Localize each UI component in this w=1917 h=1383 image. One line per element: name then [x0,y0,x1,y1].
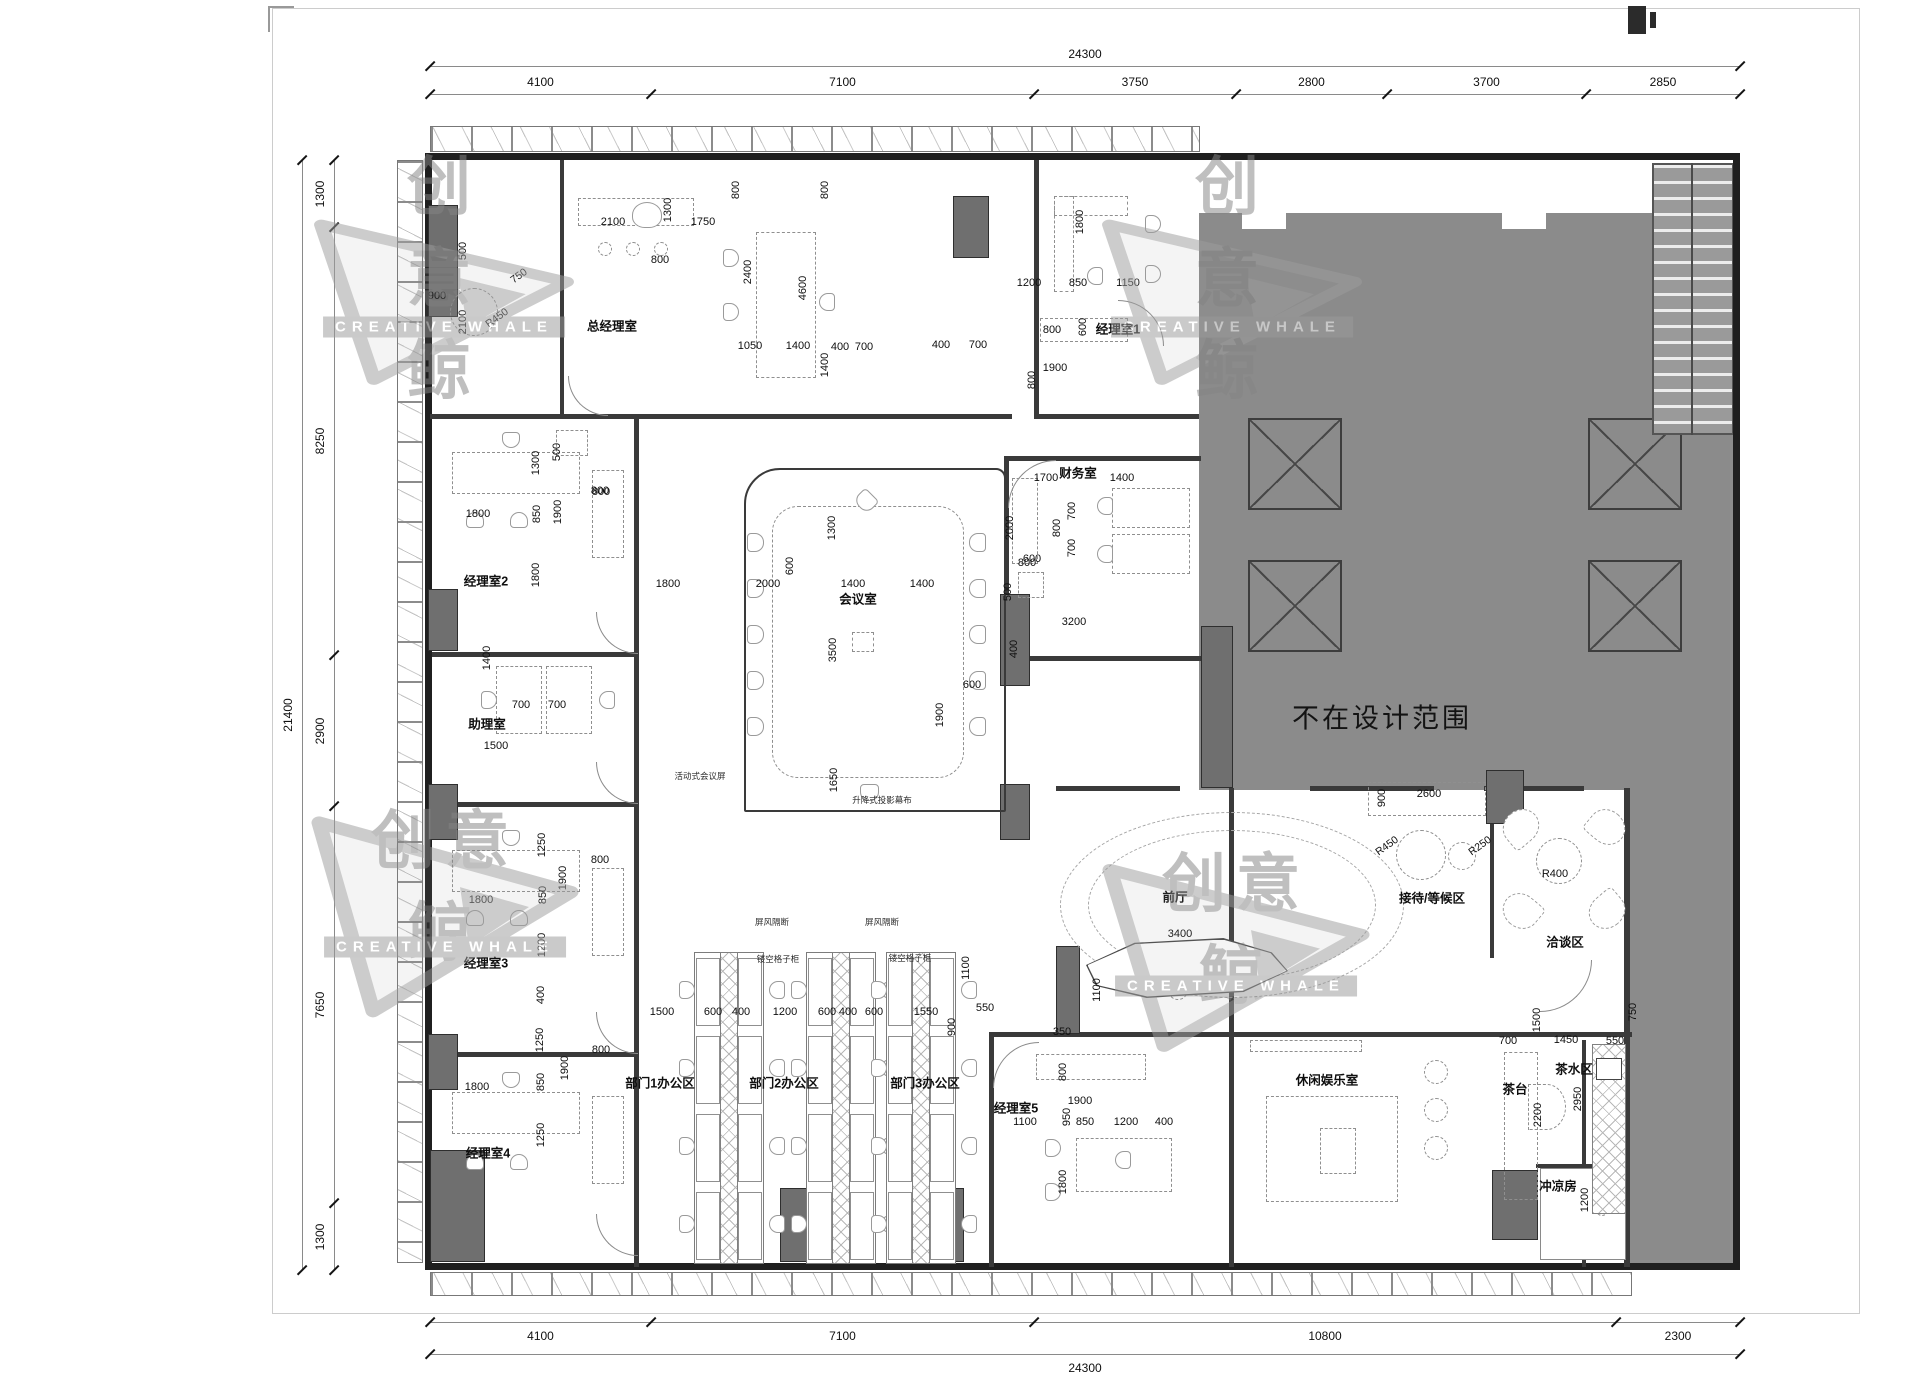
dimension-label: 4100 [527,75,554,89]
dimension-label: 4100 [527,1329,554,1343]
chair [1087,267,1103,285]
desk [888,1192,912,1260]
dimension-label: 7100 [829,75,856,89]
furniture-circle [1424,1098,1448,1122]
room-label: 会议室 [839,589,877,608]
chair [1045,1139,1061,1157]
dimension-label: 800 [1043,324,1061,336]
column [1056,946,1080,1034]
furniture-outline [1112,488,1190,528]
door-swing [596,1214,638,1256]
chair [769,1215,785,1233]
window-band-top [430,126,1200,152]
room-label: 经理室4 [466,1143,510,1162]
dimension-label: 1900 [559,1056,571,1080]
dimension-label: 1250 [535,1123,547,1147]
room-label: 洽谈区 [1546,932,1584,951]
dimension-label: 2800 [1298,75,1325,89]
dimension-label: 1200 [536,933,548,957]
stair-divider [1691,163,1693,435]
chair [481,691,497,709]
dimension-label: 1200 [1017,277,1041,289]
door-swing [1540,960,1592,1012]
dimension-label: 800 [1026,371,1038,389]
dimension-label: 400 [535,986,547,1004]
lattice-partition [720,952,738,1264]
dimension-label: 600 [704,1006,722,1018]
chair [1115,1151,1131,1169]
desk [930,1192,954,1260]
room-label: 部门1办公区 [625,1073,694,1092]
core-gray-strip [1630,788,1733,1267]
plan-note: 镂空格子柜 [889,952,932,964]
chair [961,981,977,999]
dimension-label: 1100 [960,956,972,980]
dimension-line [334,160,335,1270]
dimension-label: 1800 [469,894,493,906]
dimension-label: 1400 [910,578,934,590]
room-label: 经理室3 [464,953,508,972]
dimension-label: 1150 [1116,277,1140,289]
partition-wall [1004,656,1201,661]
projector [852,632,874,652]
chair [969,625,986,644]
dimension-label: 2300 [1665,1329,1692,1343]
dimension-label: 800 [819,181,831,199]
dimension-label: 1200 [1579,1188,1591,1212]
dimension-line [430,66,1740,67]
desk [738,1192,762,1260]
furniture-outline [452,1092,580,1134]
dimension-label: 600 [963,679,981,691]
chair [723,249,739,267]
dimension-label: 400 [1155,1116,1173,1128]
chair [969,533,986,552]
room-label: 助理室 [468,714,506,733]
furniture-circle [1424,1060,1448,1084]
dimension-label: 1300 [313,1223,327,1250]
chair [769,981,785,999]
chair [466,910,484,926]
partition-wall [1004,456,1201,461]
room-label: 接待/等候区 [1399,888,1465,907]
room-label: 经理室2 [464,571,508,590]
desk [930,1036,954,1104]
dimension-label: 1900 [1043,362,1067,374]
dimension-label: 7650 [313,991,327,1018]
furniture-outline [1112,534,1190,574]
desk [738,1036,762,1104]
chair [819,293,835,311]
dimension-label: 1050 [738,340,762,352]
dimension-label: 350 [1053,1026,1071,1038]
dimension-label: 1250 [534,1028,546,1052]
lounge-chair [1496,886,1547,936]
dimension-label: 1800 [466,508,490,520]
dimension-label: 1900 [552,500,564,524]
dimension-label: 700 [1066,502,1078,520]
furniture-outline [592,470,624,558]
dimension-label: 1300 [530,451,542,475]
elevator-shaft [1248,560,1342,652]
dimension-label: 1700 [1034,472,1058,484]
dimension-label: 1100 [1091,978,1103,1002]
dimension-label: 2600 [1417,788,1441,800]
dimension-label: 2000 [1004,516,1016,540]
chair [1097,545,1113,563]
plan-note: 升降式投影幕布 [852,794,912,806]
elevator-shaft [1588,560,1682,652]
dimension-label: 400 [1008,640,1020,658]
furniture-circle [1424,1136,1448,1160]
partition-wall [432,652,638,657]
chair [961,1215,977,1233]
dimension-label: 1900 [1068,1095,1092,1107]
chair [769,1137,785,1155]
outer-wall [425,153,1740,160]
chair [747,533,764,552]
room-label: 经理室1 [1096,319,1140,338]
outer-wall [425,1263,1740,1270]
window-band-bottom [430,1272,1632,1296]
dimension-label: 800 [1018,557,1036,569]
room-label: 茶台 [1502,1079,1527,1098]
dimension-label: 2100 [457,310,469,334]
dimension-line [430,1322,1740,1323]
dimension-label: 2950 [1572,1087,1584,1111]
furniture-outline [1018,572,1044,598]
dimension-label: 3750 [1122,75,1149,89]
dimension-label: 1900 [934,703,946,727]
dimension-label: 900 [428,290,446,302]
dimension-label: 3200 [1062,616,1086,628]
dimension-label: 600 [784,557,796,575]
dimension-label: 700 [1066,539,1078,557]
dimension-label: 700 [1499,1035,1517,1047]
dimension-label: 1400 [841,578,865,590]
dimension-label: 1800 [465,1081,489,1093]
dimension-label: 700 [969,339,987,351]
dimension-label: 1400 [786,340,810,352]
door-swing [568,376,608,416]
dimension-label: 1400 [481,646,493,670]
dimension-label: 800 [730,181,742,199]
lattice-partition [912,952,930,1264]
dimension-label: 750 [1627,1003,1639,1021]
dimension-label: 10800 [1308,1329,1341,1343]
room-label: 部门3办公区 [890,1073,959,1092]
dimension-label: 1800 [1074,210,1086,234]
chair [502,1072,520,1088]
dimension-label: 1500 [650,1006,674,1018]
furniture-outline [592,1096,624,1184]
dimension-label: 1500 [1531,1008,1543,1032]
dimension-label: 400 [839,1006,857,1018]
dimension-label: 850 [1069,277,1087,289]
furniture-outline [1250,1040,1362,1052]
dimension-label: R400 [1542,868,1568,880]
room-label: 财务室 [1059,463,1097,482]
dimension-label: 700 [512,699,530,711]
dimension-label: 1400 [1110,472,1134,484]
partition-wall [432,802,638,807]
dimension-label: 1200 [773,1006,797,1018]
dimension-label: 400 [831,341,849,353]
desk [888,1036,912,1104]
dimension-label: 2200 [1532,1103,1544,1127]
dimension-label: 1200 [1114,1116,1138,1128]
dimension-label: 600 [1077,318,1089,336]
room-label: 前厅 [1162,887,1187,906]
out-of-scope-label: 不在设计范围 [1292,697,1472,736]
dimension-label: 950 [1061,1108,1073,1126]
chair [1097,497,1113,515]
dimension-label: 1100 [1013,1116,1037,1128]
dimension-label: 21400 [281,698,295,731]
dimension-label: 400 [732,1006,750,1018]
dimension-label: 3500 [827,638,839,662]
chair [1145,215,1161,233]
dimension-label: 7100 [829,1329,856,1343]
chair [723,303,739,321]
furniture-circle [626,242,640,256]
dimension-label: 24300 [1068,47,1101,61]
column [428,784,458,840]
column [953,196,989,258]
lattice-partition [832,952,850,1264]
chair [510,512,528,528]
dimension-label: 800 [651,254,669,266]
column [428,589,458,651]
partition-wall [989,1032,994,1267]
dimension-label: 1450 [1554,1034,1578,1046]
dimension-label: 550 [976,1002,994,1014]
dimension-label: 24300 [1068,1361,1101,1375]
plan-note: 屏风隔断 [755,916,789,928]
chair [510,1154,528,1170]
chair [632,202,662,228]
dimension-label: 850 [531,505,543,523]
room-label: 茶水区 [1555,1059,1593,1078]
dimension-line [430,94,1740,95]
dimension-label: 1800 [1057,1170,1069,1194]
dimension-line [430,1354,1740,1355]
dimension-label: 700 [548,699,566,711]
desk [696,1114,720,1182]
desk [808,1192,832,1260]
partition-wall [430,414,1012,419]
room-label: 部门2办公区 [749,1073,818,1092]
furniture-outline [592,868,624,956]
dimension-label: 700 [855,341,873,353]
chair [961,1137,977,1155]
chair [747,717,764,736]
dimension-label: 2000 [756,578,780,590]
chair [791,981,807,999]
dimension-label: 900 [946,1018,958,1036]
outer-wall [425,153,432,1270]
dimension-label: 1500 [484,740,508,752]
chair [679,981,695,999]
column [1201,626,1233,788]
dimension-label: 850 [535,1073,547,1091]
dimension-label: 1800 [656,578,680,590]
core-door-opening [1242,213,1286,229]
dimension-label: 500 [457,242,469,260]
door-swing [596,612,638,654]
dimension-label: 2100 [601,216,625,228]
partition-wall [560,160,564,418]
dimension-label: 3700 [1473,75,1500,89]
dimension-label: 3400 [1168,928,1192,940]
tea-appliance [1596,1058,1622,1080]
chair [679,1215,695,1233]
dimension-label: 900 [1376,789,1388,807]
dimension-label: 800 [592,1044,610,1056]
dimension-label: 1300 [662,198,674,222]
chair [791,1137,807,1155]
dimension-label: 800 [592,486,610,498]
desk [888,1114,912,1182]
chair [502,830,520,846]
door-swing [596,762,638,804]
chair [747,625,764,644]
partition-wall [1034,414,1199,419]
room-label: 经理室5 [994,1098,1038,1117]
desk [808,1114,832,1182]
dimension-label: 1550 [914,1006,938,1018]
room-label: 冲凉房 [1539,1176,1577,1195]
chair [961,1059,977,1077]
dimension-label: 750 [508,266,529,286]
dimension-label: 400 [932,339,950,351]
dimension-label: 800 [1057,1063,1069,1081]
dimension-label: 850 [1076,1116,1094,1128]
desk [808,1036,832,1104]
dimension-label: 1300 [826,516,838,540]
dimension-label: 8250 [313,428,327,455]
desk [696,1036,720,1104]
door-swing [993,1042,1039,1088]
dimension-label: 850 [537,886,549,904]
dimension-label: 1300 [313,180,327,207]
chair [969,717,986,736]
room-label: 休闲娱乐室 [1296,1070,1359,1089]
chair [599,691,615,709]
desk [888,958,912,1026]
core-door-opening [1502,213,1546,229]
partition-wall [634,414,639,1267]
desk [696,1192,720,1260]
dimension-label: 800 [1051,519,1063,537]
desk [930,1114,954,1182]
plan-note: 屏风隔断 [865,916,899,928]
furniture-outline [756,232,816,378]
dimension-label: 4600 [797,276,809,300]
floor-plan: 2430041007100375028003700285041007100108… [0,0,1917,1383]
window-band-left [397,160,423,1263]
dimension-label: 2850 [1650,75,1677,89]
dimension-label: 1750 [691,216,715,228]
partition-wall [989,1032,1236,1037]
outer-wall [1733,153,1740,1270]
dimension-label: 2900 [313,717,327,744]
column [428,1034,458,1090]
dimension-label: 1800 [530,563,542,587]
dimension-label: 500 [551,443,563,461]
furniture-circle [598,242,612,256]
partition-wall [1490,806,1494,958]
room-label: 总经理室 [587,316,637,335]
chair [510,910,528,926]
desk [738,1114,762,1182]
partition-wall [1056,786,1180,791]
dimension-label: 1650 [828,768,840,792]
dimension-label: 500 [1002,583,1014,601]
dimension-label: 1250 [536,833,548,857]
chair [679,1137,695,1155]
furniture-circle [1396,830,1446,880]
dimension-line [302,160,303,1270]
furniture-outline [1036,1054,1146,1080]
chair [502,432,520,448]
chair [747,671,764,690]
chair [1145,265,1161,283]
dimension-label: 550 [1606,1035,1624,1047]
dimension-label: 1900 [557,866,569,890]
elevator-shaft [1248,418,1342,510]
dimension-label: 600 [865,1006,883,1018]
plan-note: 活动式会议屏 [674,770,725,782]
stair [1652,163,1734,435]
chair [969,579,986,598]
drawing-sheet: 2430041007100375028003700285041007100108… [0,0,1917,1383]
dimension-label: 2400 [742,260,754,284]
plan-note: 镂空格子柜 [757,953,800,965]
dimension-label: 600 [818,1006,836,1018]
furniture-outline [1320,1128,1356,1174]
dimension-label: 1400 [819,353,831,377]
dimension-label: 800 [591,854,609,866]
